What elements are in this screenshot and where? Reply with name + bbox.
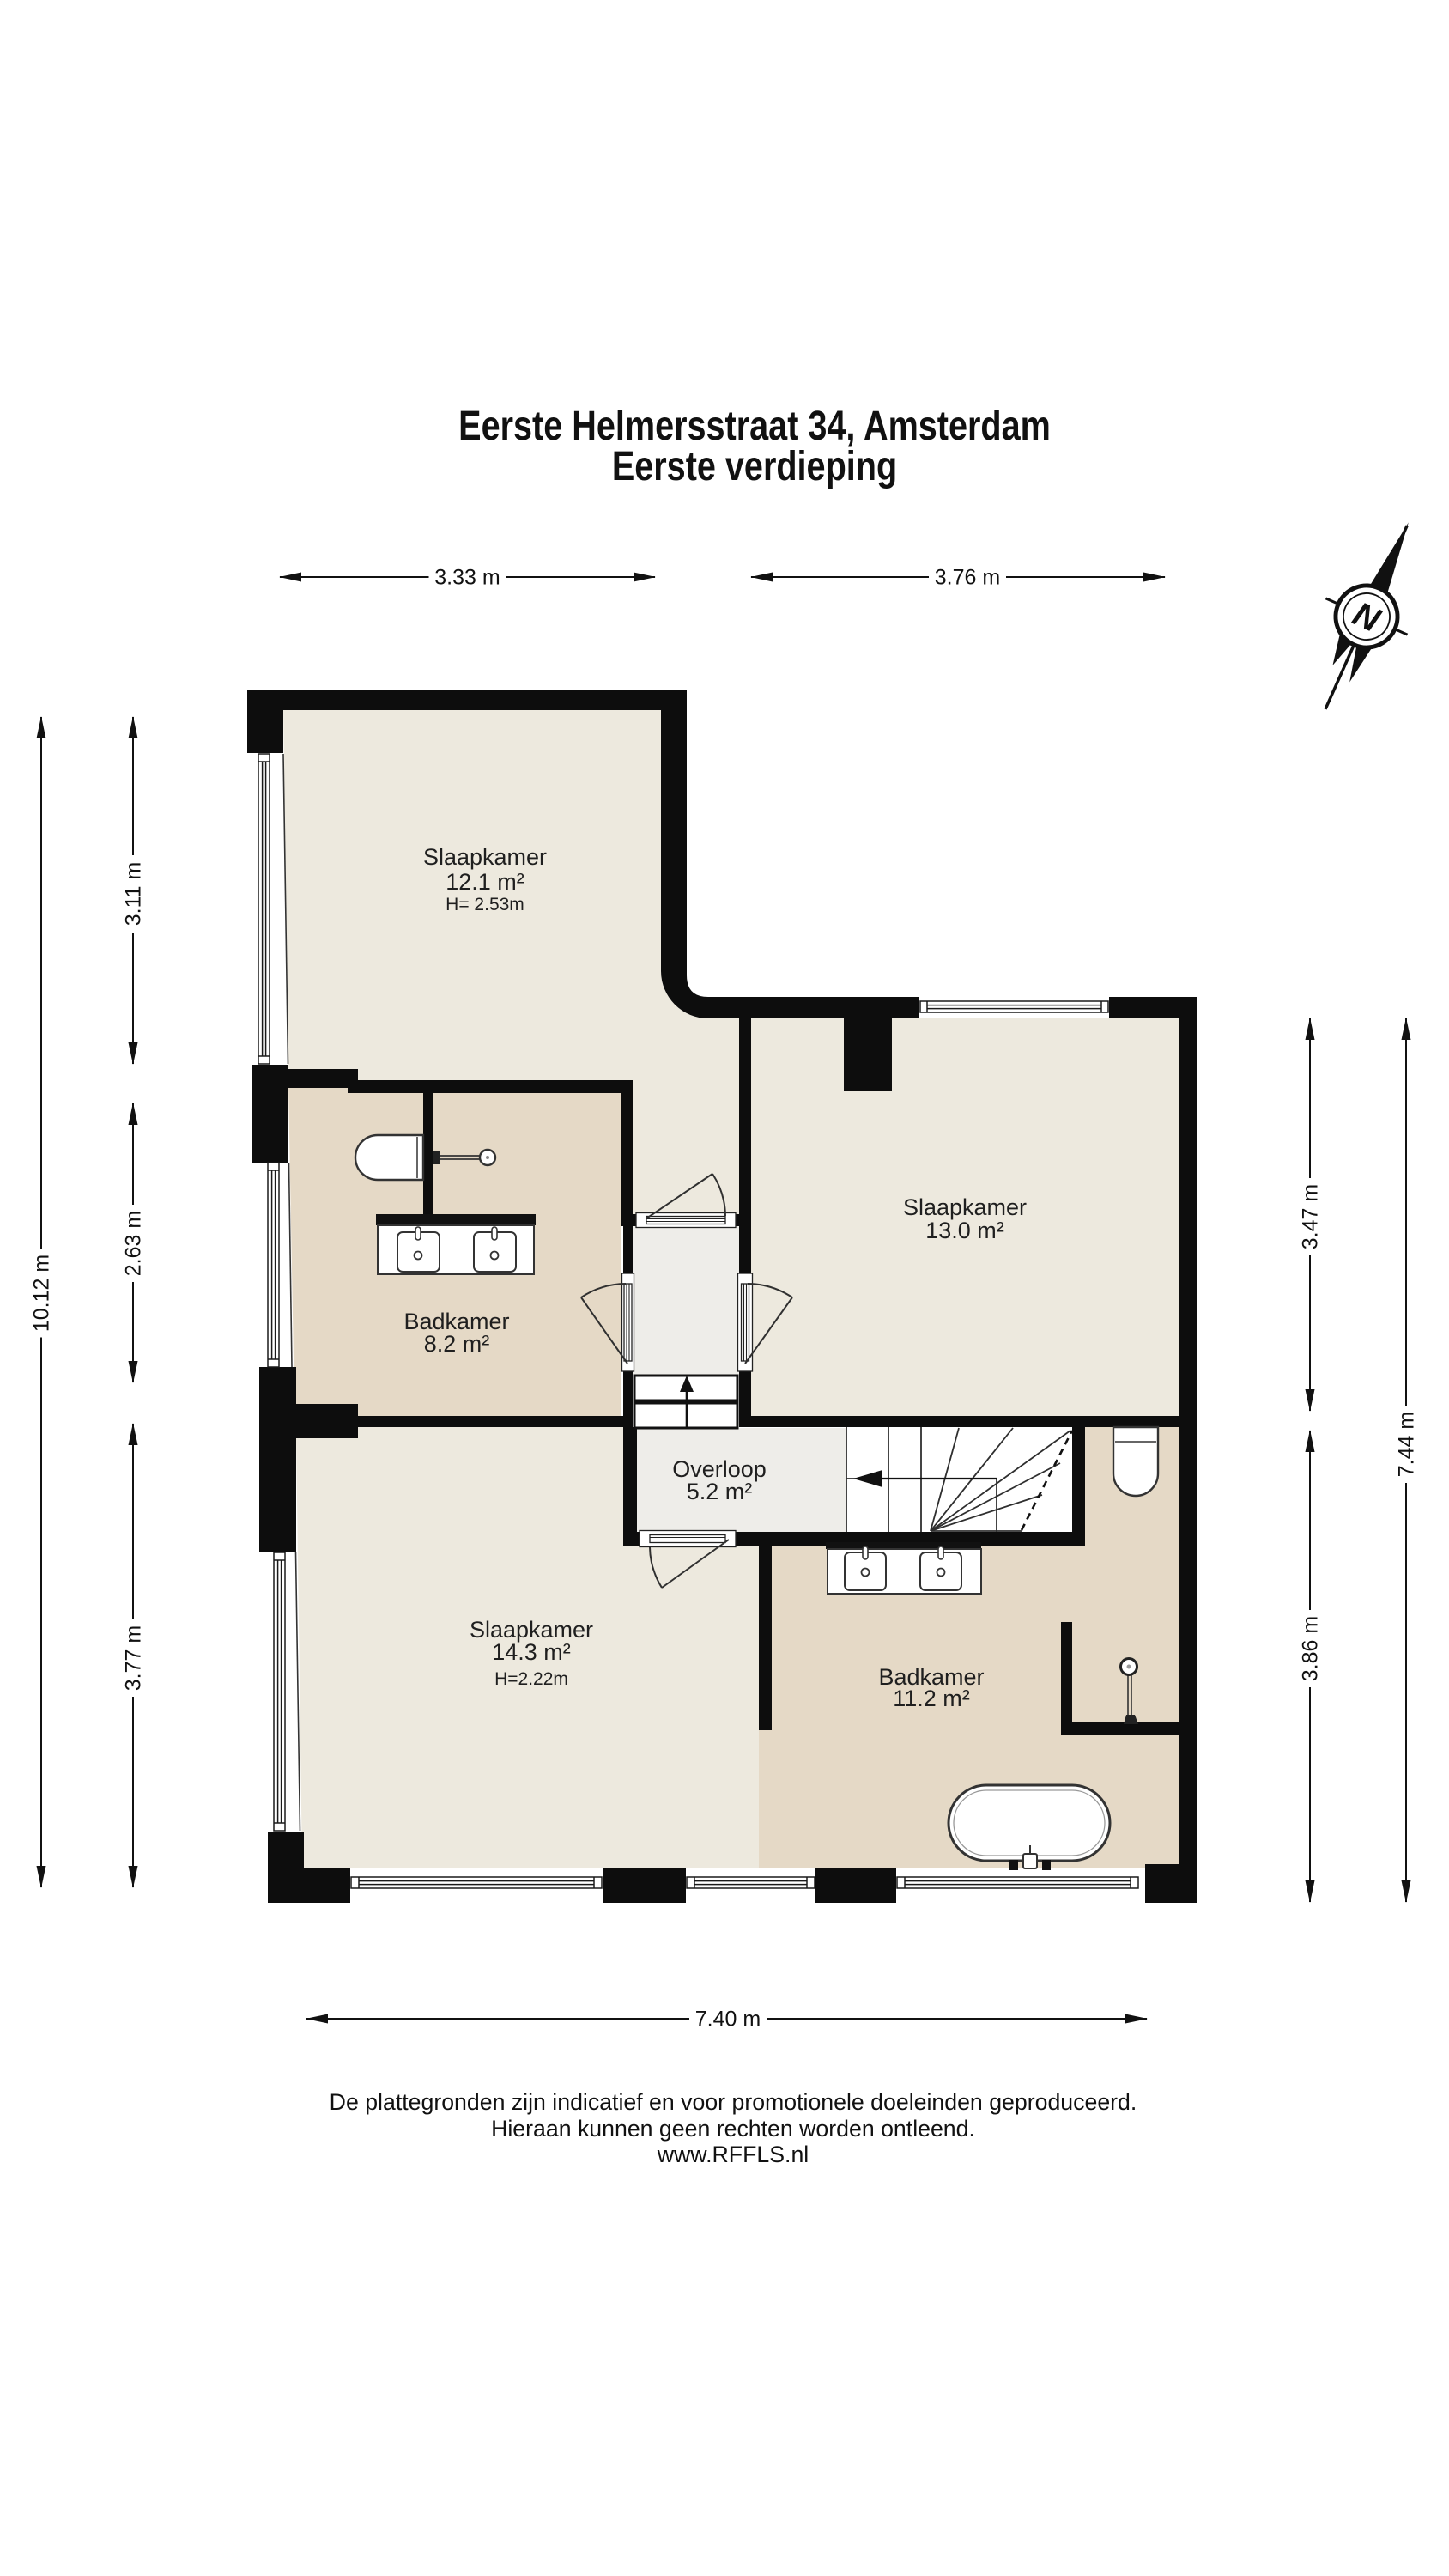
svg-text:3.33 m: 3.33 m xyxy=(434,566,500,590)
svg-text:3.77 m: 3.77 m xyxy=(122,1625,146,1691)
svg-text:12.1 m²: 12.1 m² xyxy=(446,869,524,895)
svg-text:10.12 m: 10.12 m xyxy=(30,1255,54,1332)
svg-text:14.3 m²: 14.3 m² xyxy=(492,1639,571,1665)
svg-text:3.11 m: 3.11 m xyxy=(122,862,146,927)
svg-text:2.63 m: 2.63 m xyxy=(122,1211,146,1276)
svg-text:7.40 m: 7.40 m xyxy=(695,2008,761,2032)
svg-text:Slaapkamer: Slaapkamer xyxy=(903,1194,1027,1220)
svg-text:Slaapkamer: Slaapkamer xyxy=(423,844,547,870)
svg-text:H=2.22m: H=2.22m xyxy=(494,1669,568,1689)
svg-text:3.86 m: 3.86 m xyxy=(1299,1616,1323,1681)
svg-text:5.2 m²: 5.2 m² xyxy=(687,1479,753,1504)
svg-text:3.47 m: 3.47 m xyxy=(1299,1184,1323,1249)
svg-text:13.0 m²: 13.0 m² xyxy=(925,1218,1004,1243)
svg-text:7.44 m: 7.44 m xyxy=(1395,1412,1419,1477)
svg-text:H= 2.53m: H= 2.53m xyxy=(446,895,524,914)
svg-text:11.2 m²: 11.2 m² xyxy=(893,1686,970,1711)
svg-text:8.2 m²: 8.2 m² xyxy=(424,1331,490,1357)
svg-text:3.76 m: 3.76 m xyxy=(935,566,1000,590)
